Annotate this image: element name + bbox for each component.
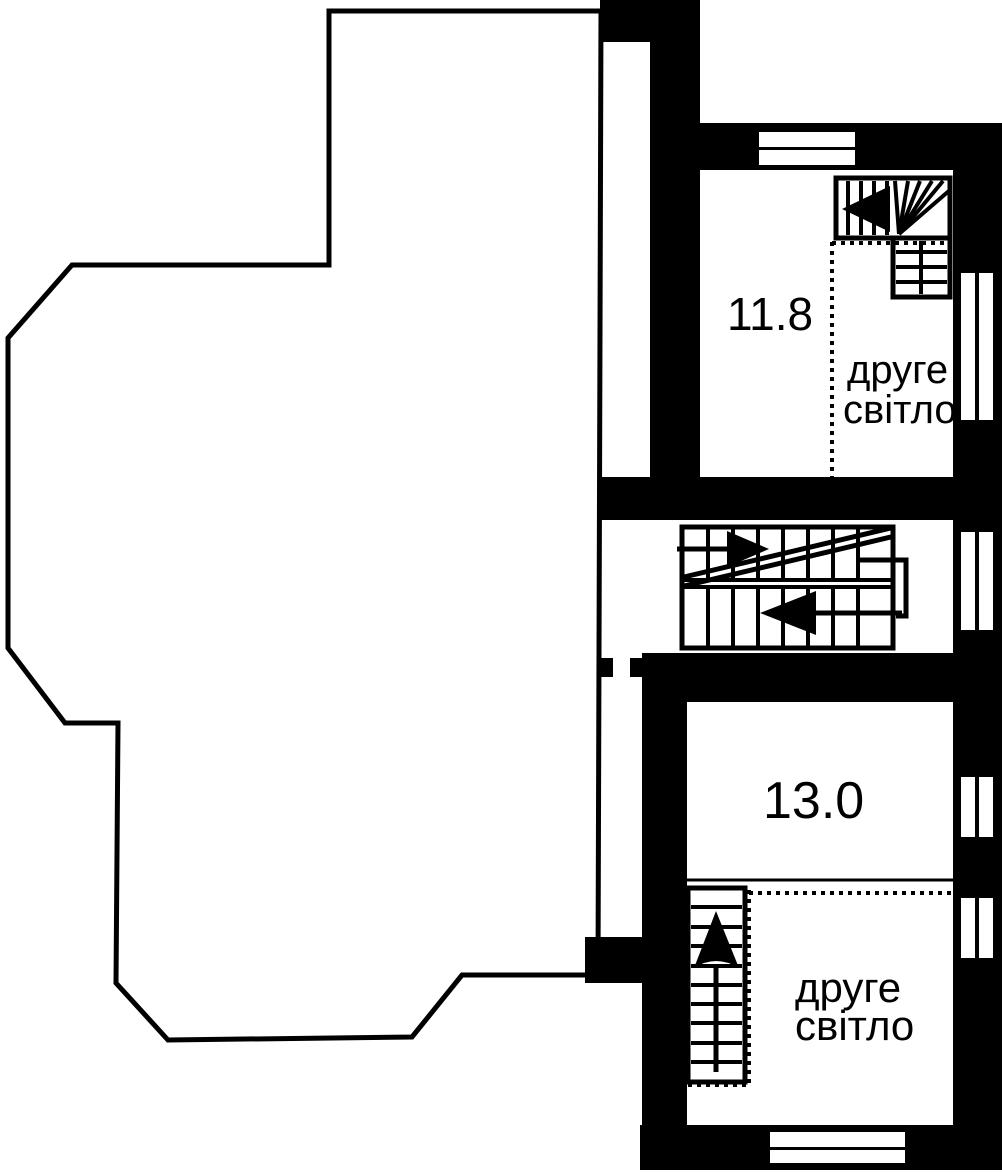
bottom-staircase [688, 888, 745, 1082]
wall-pier-1 [600, 658, 613, 677]
wall-mid-band-lower [642, 653, 1002, 702]
upper-void-label-line2: світло [843, 388, 957, 432]
floor-plan: 11.8 друге світло 13.0 друге світло [0, 0, 1002, 1173]
wall-left-upper-column [650, 0, 700, 477]
lower-void-label-line2: світло [795, 1002, 914, 1049]
wall-pier-2 [630, 658, 642, 677]
wall-stub-left [585, 937, 642, 983]
wall-left-lower-column [642, 702, 687, 1125]
wall-bottom [640, 1125, 1002, 1170]
wall-mid-band-upper [598, 477, 1002, 520]
floor-plan-canvas: 11.8 друге світло 13.0 друге світло [0, 0, 1002, 1173]
room-area-label-upper: 11.8 [727, 288, 813, 340]
room-area-label-lower: 13.0 [763, 772, 864, 830]
upper-void-label-line1: друге [847, 348, 948, 392]
middle-staircase [677, 527, 906, 648]
